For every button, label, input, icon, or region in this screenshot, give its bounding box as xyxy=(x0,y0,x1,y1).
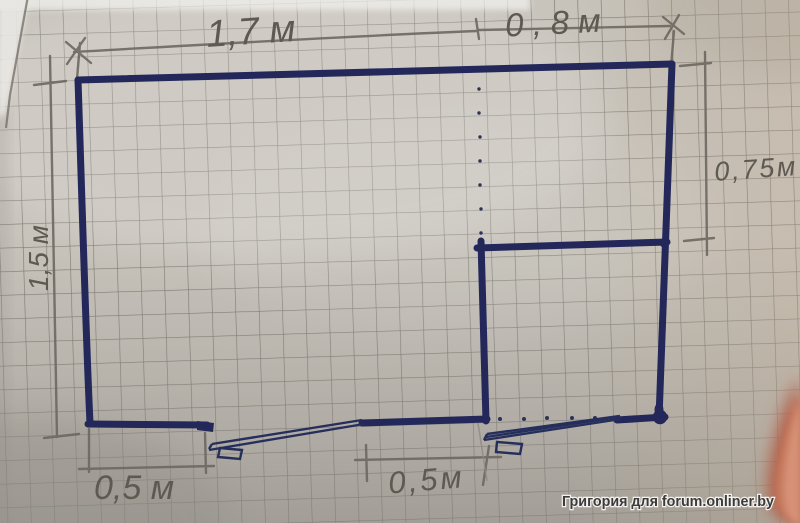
svg-text:Григория для forum.onliner.by: Григория для forum.onliner.by xyxy=(562,494,774,510)
